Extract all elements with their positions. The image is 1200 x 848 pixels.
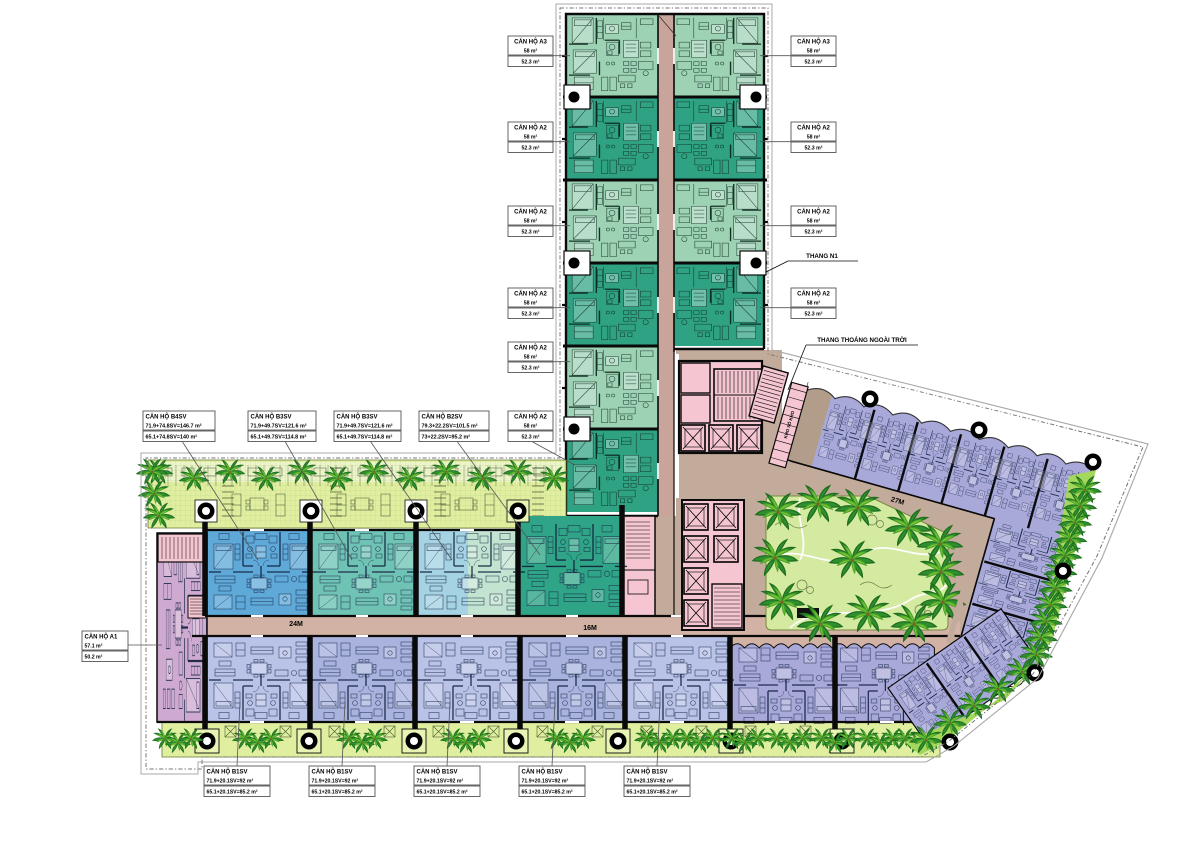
svg-text:65.1+74.8SV=140 m²: 65.1+74.8SV=140 m² <box>146 435 198 441</box>
svg-text:50.2 m²: 50.2 m² <box>85 655 103 661</box>
svg-text:52.3 m²: 52.3 m² <box>522 146 540 152</box>
svg-text:65.1+20.1SV=85.2 m²: 65.1+20.1SV=85.2 m² <box>312 790 363 796</box>
svg-text:CĂN HỘ A1: CĂN HỘ A1 <box>85 632 118 640</box>
svg-text:CĂN HỘ B1SV: CĂN HỘ B1SV <box>627 767 668 775</box>
svg-text:CĂN HỘ A2: CĂN HỘ A2 <box>797 207 830 215</box>
svg-text:65.1+20.1SV=85.2 m²: 65.1+20.1SV=85.2 m² <box>627 790 678 796</box>
svg-text:CĂN HỘ A3: CĂN HỘ A3 <box>797 37 830 45</box>
svg-text:58 m²: 58 m² <box>524 49 538 55</box>
svg-text:65.1+49.7SV=114.8 m²: 65.1+49.7SV=114.8 m² <box>337 435 393 441</box>
svg-text:52.3 m²: 52.3 m² <box>522 312 540 318</box>
svg-text:24M: 24M <box>289 621 303 628</box>
svg-text:CĂN HỘ A2: CĂN HỘ A2 <box>514 412 547 420</box>
svg-text:58 m²: 58 m² <box>524 301 538 307</box>
svg-text:CĂN HỘ A2: CĂN HỘ A2 <box>514 343 547 351</box>
svg-text:58 m²: 58 m² <box>524 424 538 430</box>
svg-text:52.3 m²: 52.3 m² <box>522 60 540 66</box>
svg-text:THANG N1: THANG N1 <box>806 253 838 260</box>
svg-text:52.3 m²: 52.3 m² <box>805 230 823 236</box>
svg-text:CĂN HỘ B1SV: CĂN HỘ B1SV <box>207 767 248 775</box>
svg-text:52.3 m²: 52.3 m² <box>805 146 823 152</box>
svg-text:58 m²: 58 m² <box>524 355 538 361</box>
svg-text:71.9+20.1SV=92 m²: 71.9+20.1SV=92 m² <box>522 779 569 785</box>
svg-text:79.3+22.2SV=101.5 m²: 79.3+22.2SV=101.5 m² <box>422 424 478 430</box>
svg-text:CĂN HỘ B2SV: CĂN HỘ B2SV <box>422 412 463 420</box>
svg-text:58 m²: 58 m² <box>524 219 538 225</box>
svg-text:52.3 m²: 52.3 m² <box>805 312 823 318</box>
svg-text:CĂN HỘ B1SV: CĂN HỘ B1SV <box>312 767 353 775</box>
svg-text:57.1 m²: 57.1 m² <box>85 644 103 650</box>
svg-text:CĂN HỘ A2: CĂN HỘ A2 <box>797 289 830 297</box>
svg-text:71.9+74.8SV=146.7 m²: 71.9+74.8SV=146.7 m² <box>146 424 202 430</box>
svg-text:71.9+20.1SV=92 m²: 71.9+20.1SV=92 m² <box>417 779 464 785</box>
svg-text:CĂN HỘ A3: CĂN HỘ A3 <box>514 37 547 45</box>
svg-text:65.1+49.7SV=114.8 m²: 65.1+49.7SV=114.8 m² <box>251 435 307 441</box>
svg-text:58 m²: 58 m² <box>807 301 821 307</box>
svg-text:52.3 m²: 52.3 m² <box>522 366 540 372</box>
svg-text:CĂN HỘ B1SV: CĂN HỘ B1SV <box>417 767 458 775</box>
svg-text:58 m²: 58 m² <box>807 49 821 55</box>
svg-text:65.1+20.1SV=85.2 m²: 65.1+20.1SV=85.2 m² <box>207 790 258 796</box>
svg-text:CĂN HỘ B3SV: CĂN HỘ B3SV <box>337 412 378 420</box>
svg-text:71.9+20.1SV=92 m²: 71.9+20.1SV=92 m² <box>207 779 254 785</box>
svg-text:CĂN HỘ A2: CĂN HỘ A2 <box>797 123 830 131</box>
svg-text:16M: 16M <box>583 625 597 632</box>
svg-text:CĂN HỘ B1SV: CĂN HỘ B1SV <box>522 767 563 775</box>
svg-text:CĂN HỘ A2: CĂN HỘ A2 <box>514 123 547 131</box>
svg-text:52.3 m²: 52.3 m² <box>522 230 540 236</box>
svg-text:71.9+49.7SV=121.6 m²: 71.9+49.7SV=121.6 m² <box>251 424 307 430</box>
svg-text:52.3 m²: 52.3 m² <box>522 435 540 441</box>
svg-text:73+22.2SV=95.2 m²: 73+22.2SV=95.2 m² <box>422 435 471 441</box>
svg-text:65.1+20.1SV=85.2 m²: 65.1+20.1SV=85.2 m² <box>417 790 468 796</box>
svg-text:65.1+20.1SV=85.2 m²: 65.1+20.1SV=85.2 m² <box>522 790 573 796</box>
svg-text:58 m²: 58 m² <box>524 135 538 141</box>
svg-text:58 m²: 58 m² <box>807 219 821 225</box>
svg-text:58 m²: 58 m² <box>807 135 821 141</box>
svg-text:CĂN HỘ B3SV: CĂN HỘ B3SV <box>251 412 292 420</box>
svg-text:52.3 m²: 52.3 m² <box>805 60 823 66</box>
svg-text:71.9+20.1SV=92 m²: 71.9+20.1SV=92 m² <box>312 779 359 785</box>
svg-text:CĂN HỘ B4SV: CĂN HỘ B4SV <box>146 412 187 420</box>
svg-text:CĂN HỘ A2: CĂN HỘ A2 <box>514 289 547 297</box>
svg-text:71.9+49.7SV=121.6 m²: 71.9+49.7SV=121.6 m² <box>337 424 393 430</box>
svg-text:71.9+20.1SV=92 m²: 71.9+20.1SV=92 m² <box>627 779 674 785</box>
svg-text:CĂN HỘ A2: CĂN HỘ A2 <box>514 207 547 215</box>
svg-text:THANG THOÁNG NGOÀI TRỜI: THANG THOÁNG NGOÀI TRỜI <box>817 336 907 344</box>
